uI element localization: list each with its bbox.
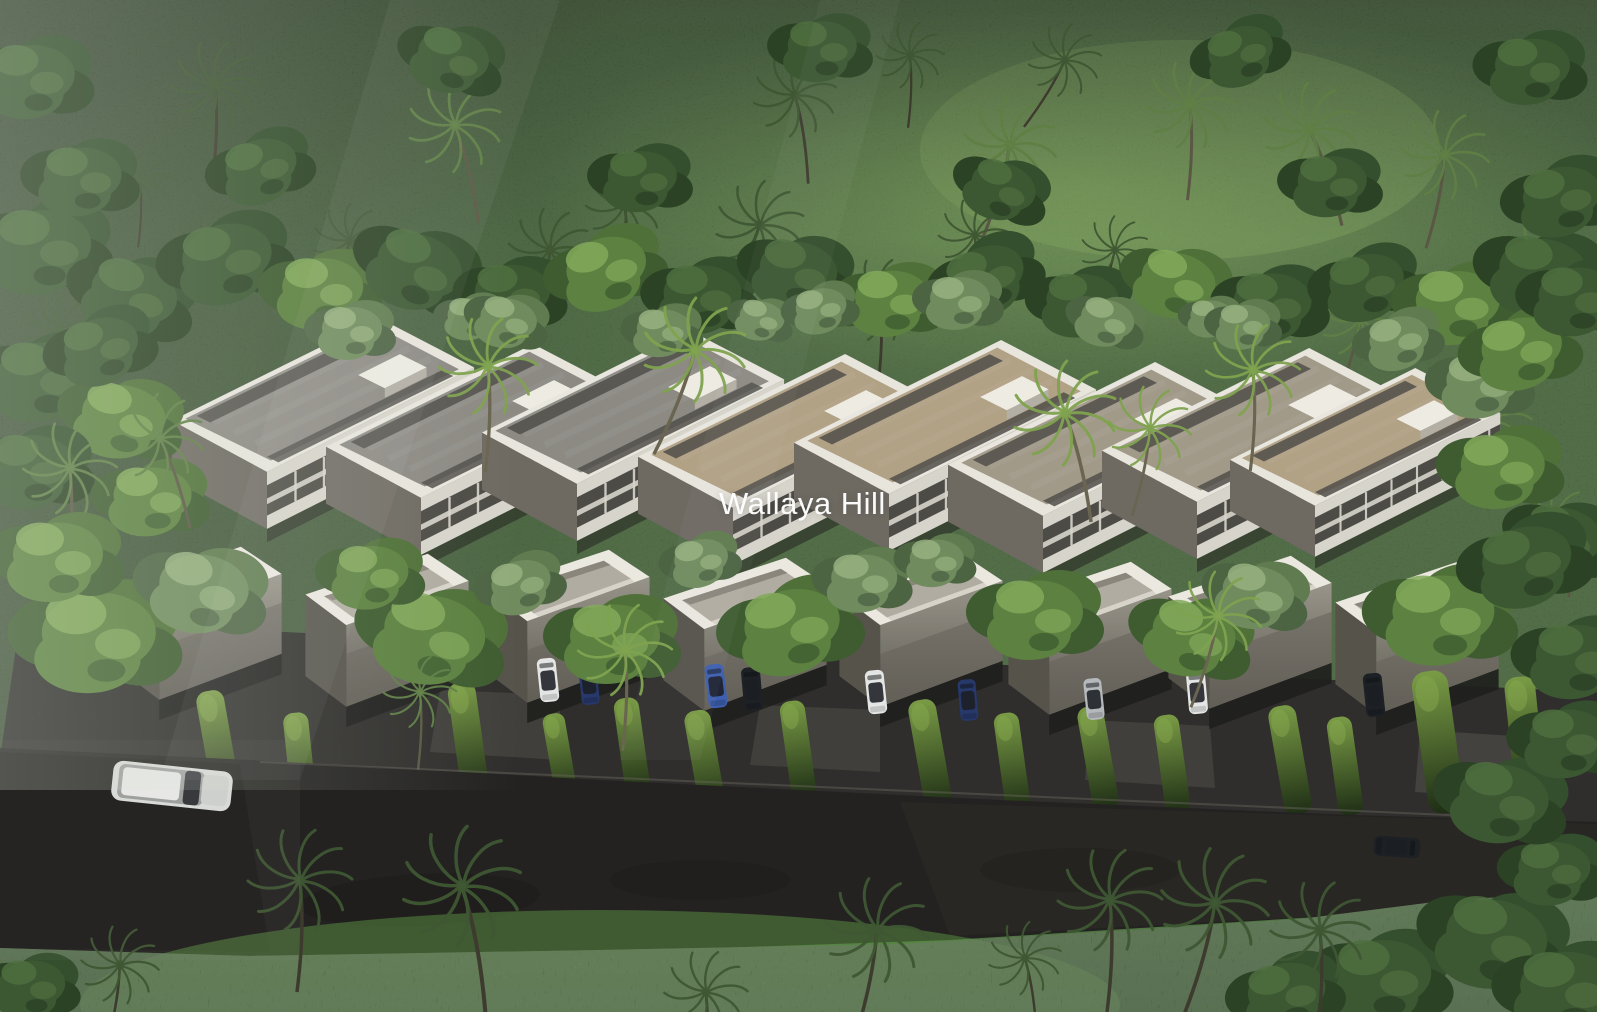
leafy-tree — [0, 953, 81, 1012]
road-car — [1373, 835, 1420, 858]
parked-car — [957, 679, 979, 722]
scene-svg — [0, 0, 1597, 1012]
parked-car — [741, 666, 764, 711]
aerial-site-render: Wallaya Hill — [0, 0, 1597, 1012]
